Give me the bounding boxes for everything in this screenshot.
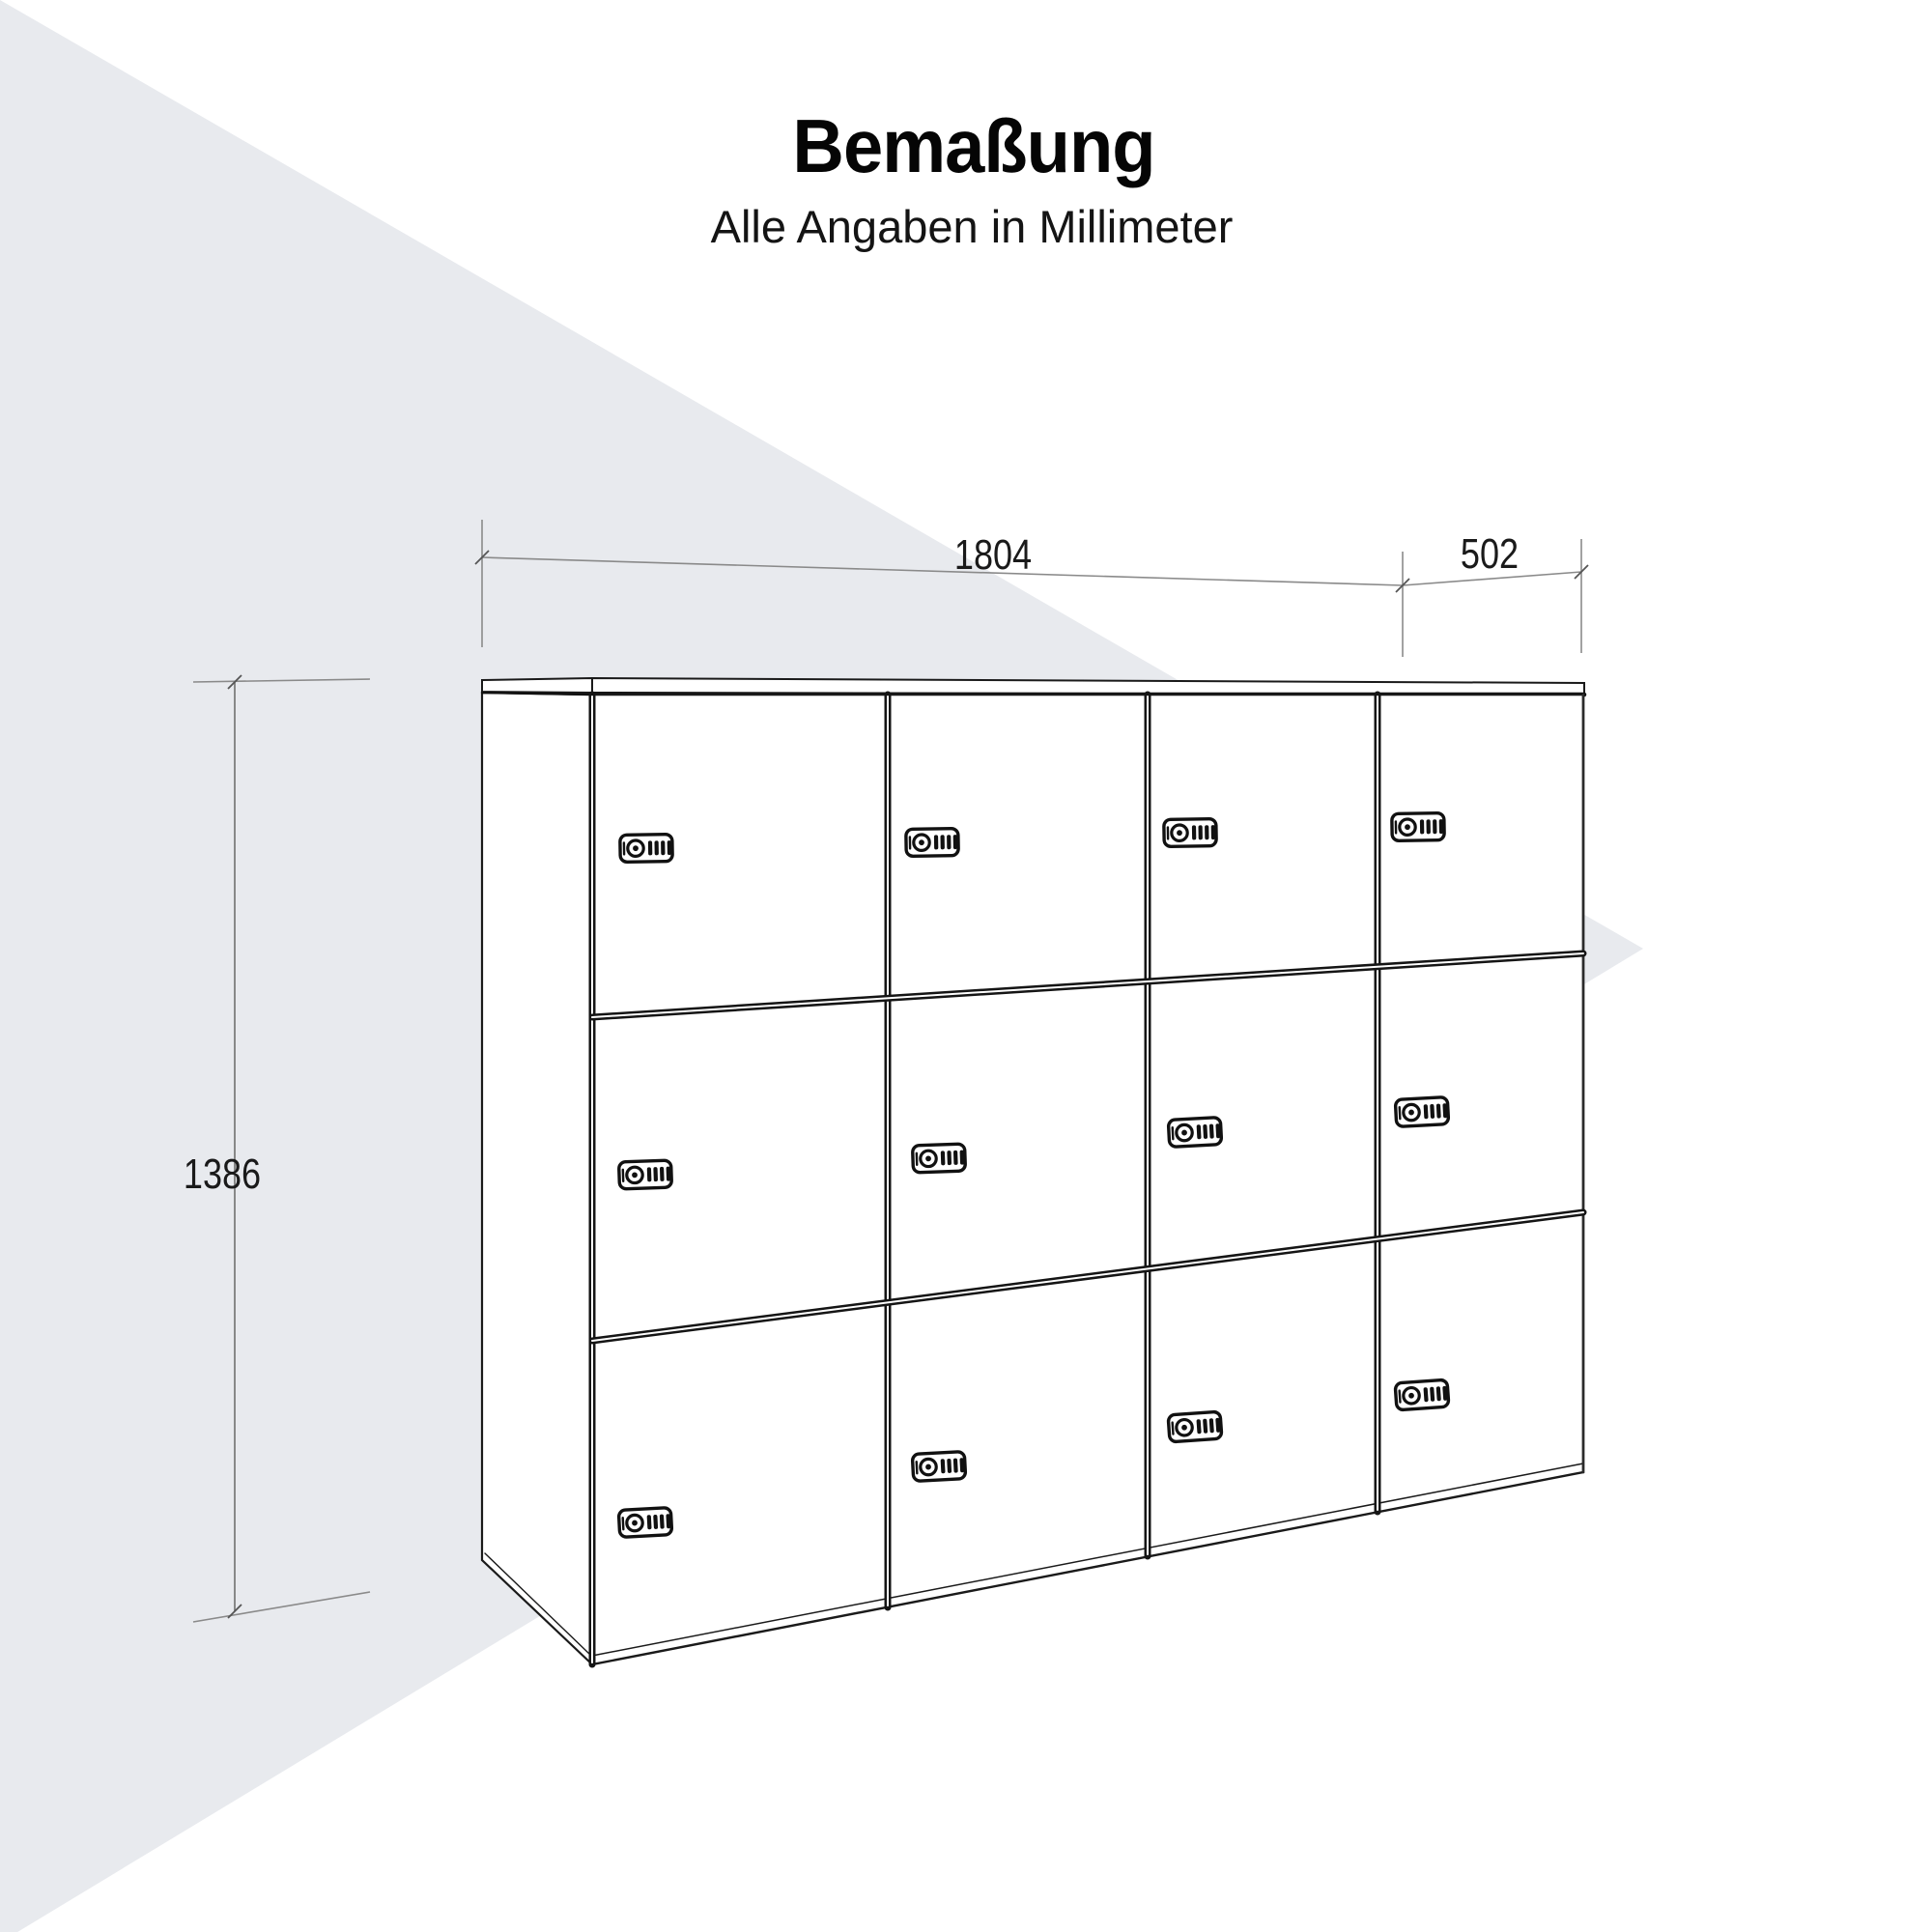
combination-lock-icon <box>620 835 672 863</box>
cabinet-top-panel <box>482 678 1584 695</box>
combination-lock-icon <box>618 1508 671 1538</box>
combination-lock-icon <box>1164 819 1216 847</box>
page-subtitle: Alle Angaben in Millimeter <box>711 201 1234 252</box>
width-dimension-label: 1804 <box>954 531 1032 579</box>
combination-lock-icon <box>1168 1411 1222 1442</box>
page-title: Bemaßung <box>792 104 1154 188</box>
combination-lock-icon <box>912 1452 965 1482</box>
depth-dimension-label: 502 <box>1461 530 1519 578</box>
combination-lock-icon <box>619 1160 672 1189</box>
combination-lock-icon <box>913 1144 966 1173</box>
combination-lock-icon <box>906 829 958 857</box>
dimension-drawing-page: Bemaßung Alle Angaben in Millimeter 1804… <box>0 0 1932 1932</box>
combination-lock-icon <box>1168 1118 1221 1148</box>
cabinet-drawing <box>482 678 1584 1664</box>
combination-lock-icon <box>1392 813 1444 841</box>
combination-lock-icon <box>1395 1379 1449 1410</box>
height-dimension-label: 1386 <box>184 1151 261 1198</box>
cabinet-side-panel <box>482 693 592 1664</box>
combination-lock-icon <box>1395 1097 1448 1127</box>
cabinet-dimension-diagram: Bemaßung Alle Angaben in Millimeter 1804… <box>0 0 1932 1932</box>
